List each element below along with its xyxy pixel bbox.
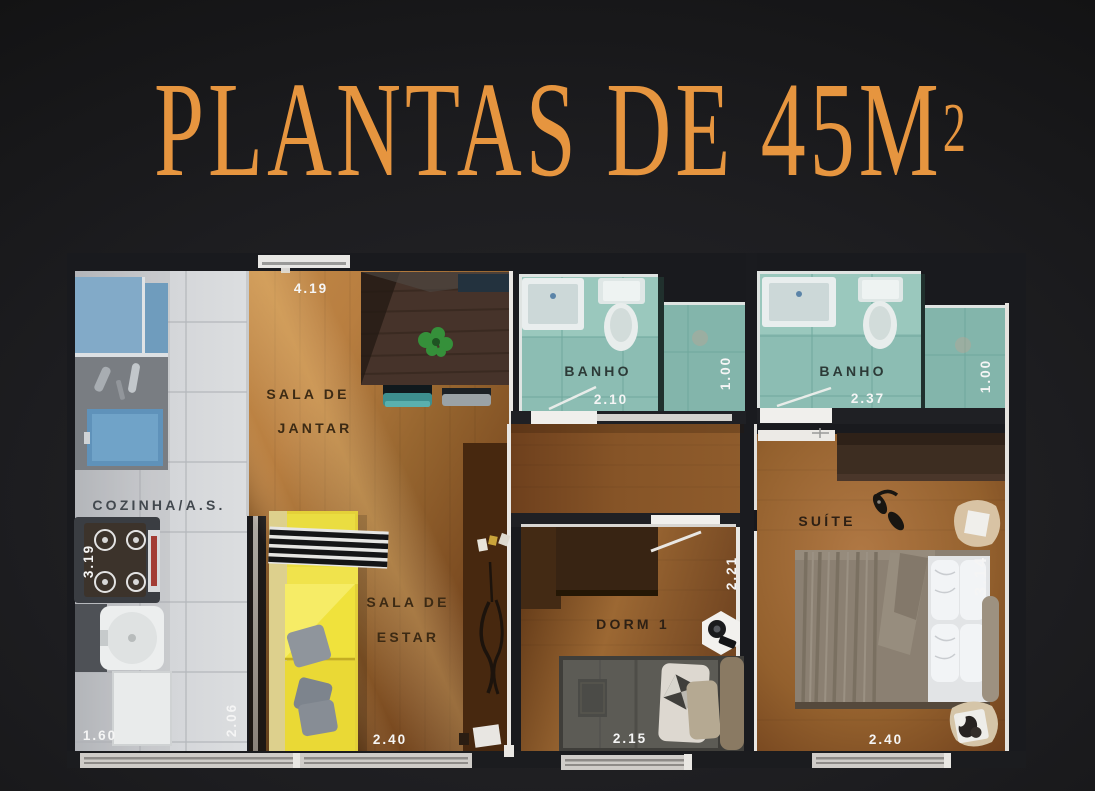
svg-text:1.00: 1.00 bbox=[718, 356, 733, 390]
svg-text:SUÍTE: SUÍTE bbox=[798, 513, 855, 529]
svg-text:2.06: 2.06 bbox=[224, 703, 239, 737]
svg-text:2.15: 2.15 bbox=[613, 731, 647, 746]
svg-text:SALA DE: SALA DE bbox=[366, 594, 449, 610]
svg-text:1.00: 1.00 bbox=[978, 359, 993, 393]
svg-text:ESTAR: ESTAR bbox=[377, 629, 439, 645]
svg-text:DORM 1: DORM 1 bbox=[596, 616, 670, 632]
svg-text:3.19: 3.19 bbox=[81, 544, 96, 578]
svg-text:2.37: 2.37 bbox=[851, 391, 885, 406]
svg-text:COZINHA/A.S.: COZINHA/A.S. bbox=[92, 497, 225, 513]
svg-text:1.60: 1.60 bbox=[83, 728, 117, 743]
svg-text:3.14: 3.14 bbox=[972, 556, 990, 596]
svg-text:2.21: 2.21 bbox=[724, 556, 739, 590]
svg-text:2.40: 2.40 bbox=[869, 732, 903, 747]
svg-text:JANTAR: JANTAR bbox=[278, 420, 353, 436]
svg-text:4.19: 4.19 bbox=[294, 281, 328, 296]
svg-text:SALA DE: SALA DE bbox=[266, 386, 349, 402]
svg-text:BANHO: BANHO bbox=[564, 363, 631, 379]
svg-text:2.40: 2.40 bbox=[373, 732, 407, 747]
svg-text:BANHO: BANHO bbox=[819, 363, 886, 379]
svg-text:2.10: 2.10 bbox=[594, 392, 628, 407]
